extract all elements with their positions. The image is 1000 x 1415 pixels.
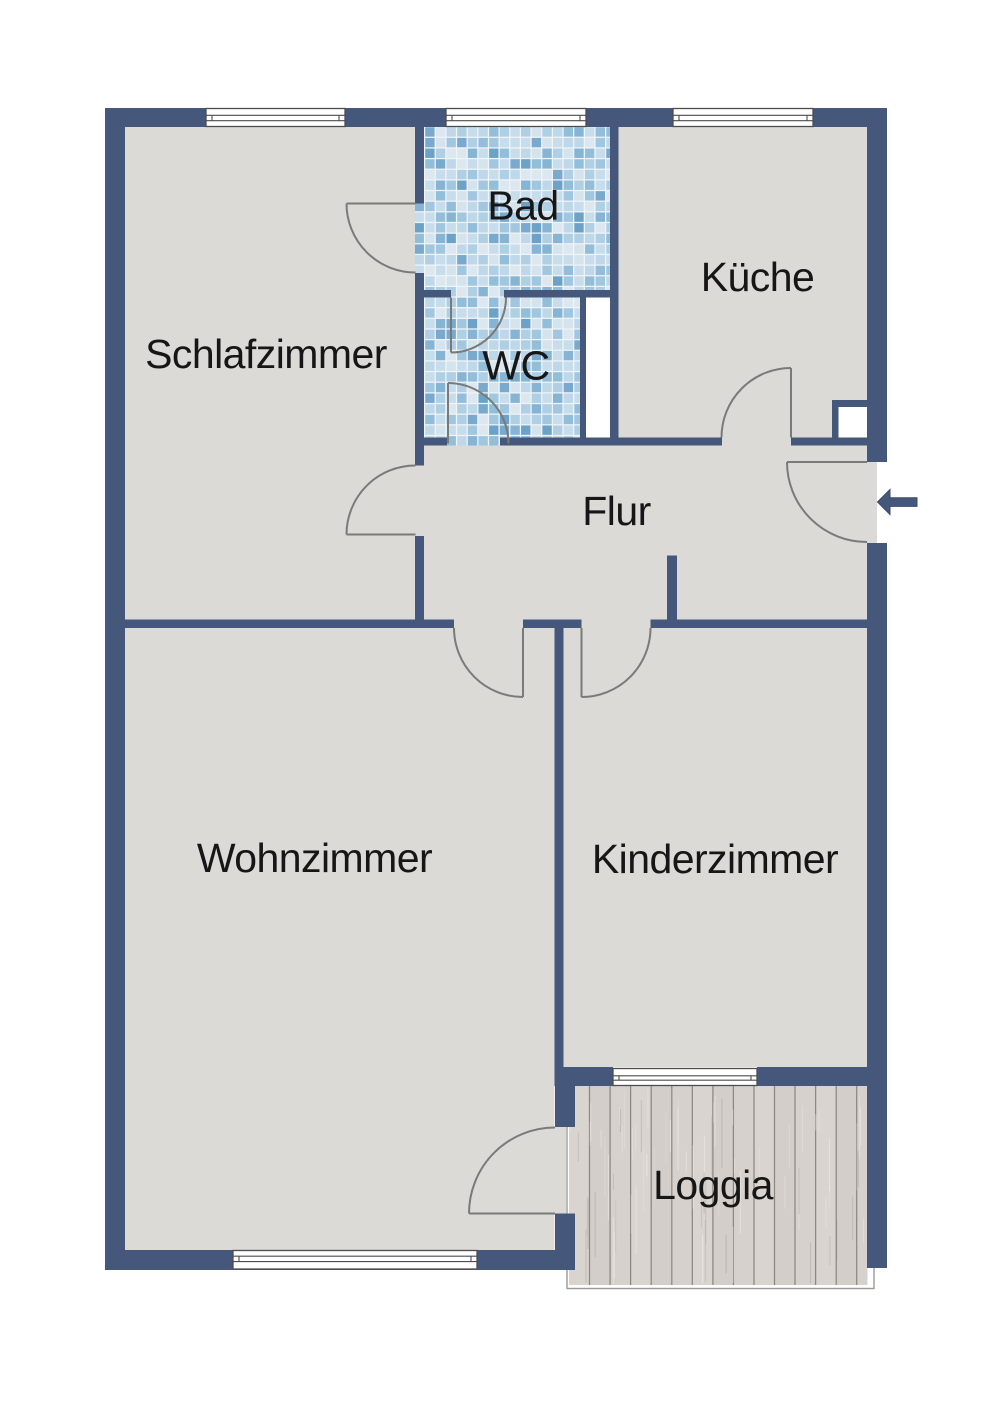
svg-text:Loggia: Loggia <box>653 1162 774 1208</box>
svg-text:Flur: Flur <box>582 488 650 534</box>
svg-text:Bad: Bad <box>487 183 558 229</box>
svg-text:Wohnzimmer: Wohnzimmer <box>197 835 432 881</box>
svg-text:Kinderzimmer: Kinderzimmer <box>592 836 838 882</box>
svg-text:WC: WC <box>482 343 549 389</box>
svg-text:Küche: Küche <box>701 254 815 300</box>
svg-text:Schlafzimmer: Schlafzimmer <box>145 331 387 377</box>
